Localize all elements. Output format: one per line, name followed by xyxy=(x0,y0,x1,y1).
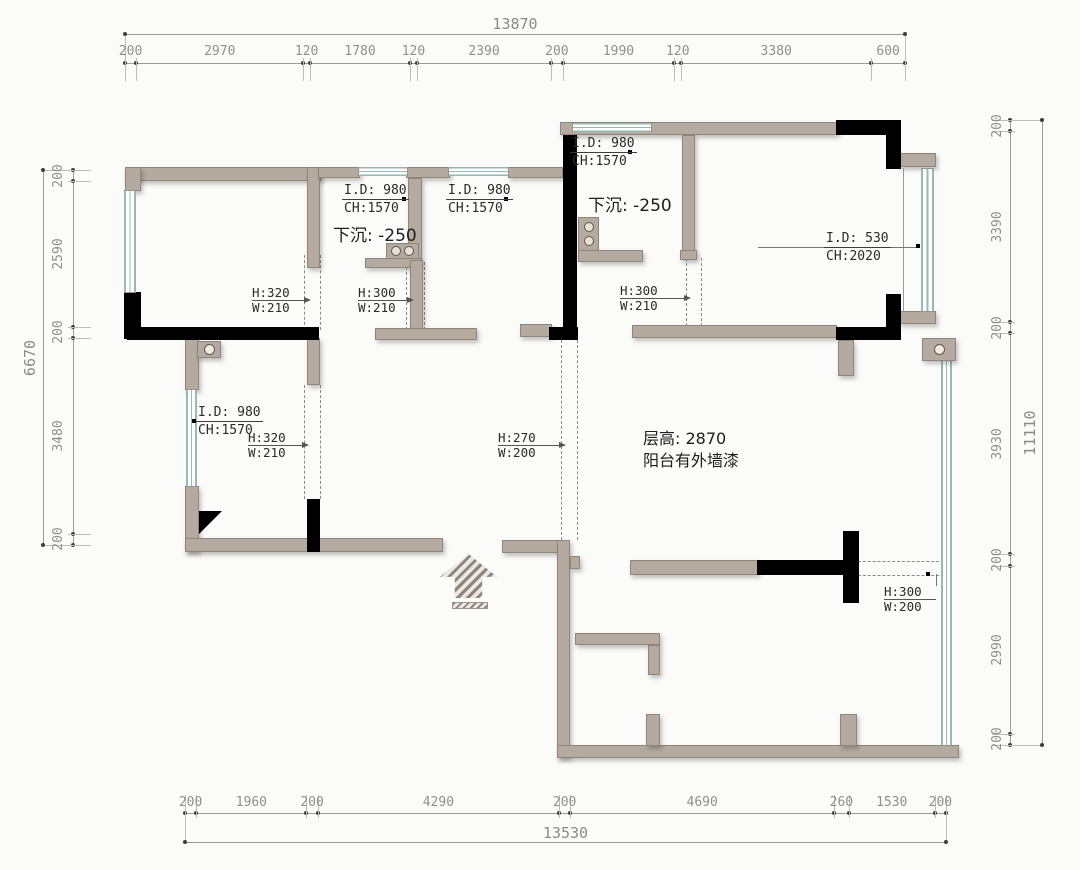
beam-leader-arrowhead xyxy=(304,297,311,303)
dim-segment-label: 200 xyxy=(990,525,1004,595)
structural-wall-segment xyxy=(886,120,901,169)
sunken-note: 下沉: -250 xyxy=(333,221,417,246)
beam-width-value: W:200 xyxy=(498,445,536,460)
dim-segment-label: 200 xyxy=(96,44,166,58)
beam-dashed-line xyxy=(686,258,687,326)
window xyxy=(572,123,652,132)
beam-height-value: H:300 xyxy=(620,283,658,298)
corner-marker xyxy=(199,511,222,534)
beam-dashed-line xyxy=(304,255,305,330)
dim-segment-label: 200 xyxy=(277,795,347,809)
window-ch-value: CH:1570 xyxy=(570,153,637,169)
beam-leader-line xyxy=(252,300,304,301)
wall-segment xyxy=(375,328,477,340)
beam-dashed-line xyxy=(858,575,944,576)
dim-line xyxy=(125,63,905,64)
wall-segment xyxy=(570,556,580,569)
beam-leader-arrowhead xyxy=(684,295,691,301)
dim-extension xyxy=(681,58,682,81)
stove-fixture xyxy=(578,217,599,251)
dim-segment-label: 3930 xyxy=(990,409,1004,479)
dim-tick xyxy=(944,840,948,844)
dim-extension xyxy=(68,170,91,171)
wall-segment xyxy=(680,250,697,260)
beam-dashed-line xyxy=(424,262,425,330)
leader-line xyxy=(936,574,937,586)
wall-segment xyxy=(307,338,320,385)
dim-segment-label: 120 xyxy=(378,44,448,58)
wall-segment xyxy=(575,633,660,645)
wall-segment xyxy=(899,153,936,167)
dim-extension xyxy=(68,181,91,182)
wall-segment xyxy=(682,135,695,255)
dim-segment-label: 2390 xyxy=(449,44,519,58)
wall-segment xyxy=(406,167,450,178)
dim-total-line xyxy=(185,842,946,843)
window-id-value: I.D: 980 xyxy=(446,183,513,200)
window-id-value: I.D: 980 xyxy=(570,136,637,153)
dim-line xyxy=(73,170,74,545)
structural-wall-segment xyxy=(836,327,901,340)
beam-width-value: W:210 xyxy=(248,445,286,460)
dim-segment-label: 4690 xyxy=(667,795,737,809)
dim-total-label: 6670 xyxy=(21,318,37,398)
dim-extension xyxy=(551,58,552,81)
dim-segment-label: 3480 xyxy=(51,401,65,471)
beam-dashed-line xyxy=(320,385,321,499)
beam-leader-arrowhead xyxy=(407,297,414,303)
beam-leader-underline xyxy=(884,599,936,600)
dim-total-line xyxy=(1042,120,1043,745)
window-id-value: I.D: 530 xyxy=(824,231,891,248)
dim-extension xyxy=(68,545,91,546)
dim-tick xyxy=(123,32,127,36)
beam-leader-line xyxy=(498,445,559,446)
beam-leader-line xyxy=(248,445,302,446)
dim-segment-label: 200 xyxy=(522,44,592,58)
sunken-note: 下沉: -250 xyxy=(588,191,672,216)
dim-total-label: 11110 xyxy=(1021,393,1037,473)
beam-dashed-line xyxy=(858,561,944,562)
leader-dot xyxy=(916,244,920,248)
dim-extension xyxy=(68,534,91,535)
beam-dashed-line xyxy=(701,258,702,326)
beam-leader-line xyxy=(358,300,407,301)
wall-segment xyxy=(648,645,660,675)
dim-extension xyxy=(410,58,411,81)
window xyxy=(448,167,509,176)
beam-height-value: H:300 xyxy=(884,584,922,599)
dim-extension xyxy=(871,58,872,81)
wall-segment xyxy=(508,167,563,178)
wall-segment xyxy=(632,325,837,338)
burner-icon xyxy=(584,236,594,246)
beam-dashed-line xyxy=(406,262,407,330)
dim-segment-label: 200 xyxy=(905,795,975,809)
wall-segment xyxy=(838,340,854,376)
dim-extension xyxy=(68,338,91,339)
dim-segment-label: 200 xyxy=(990,293,1004,363)
dim-total-line xyxy=(43,170,44,545)
beam-width-value: W:200 xyxy=(884,599,922,614)
beam-dashed-line xyxy=(320,255,321,330)
entry-threshold xyxy=(452,602,488,609)
burner-icon xyxy=(404,246,414,256)
dim-tick xyxy=(903,32,907,36)
wall-segment xyxy=(125,167,321,181)
dim-extension xyxy=(136,58,137,81)
window-ch-value: CH:2020 xyxy=(824,248,891,264)
dim-segment-label: 120 xyxy=(643,44,713,58)
structural-wall-segment xyxy=(843,531,859,603)
dim-segment-label: 200 xyxy=(156,795,226,809)
wall-segment xyxy=(502,540,564,553)
beam-height-value: H:320 xyxy=(248,430,286,445)
dim-extension xyxy=(563,58,564,81)
floor-plan-canvas: I.D: 980CH:1570I.D: 980CH:1570I.D: 980CH… xyxy=(0,0,1080,870)
column-marker xyxy=(922,338,956,361)
dim-tick xyxy=(41,543,45,547)
beam-leader-arrowhead xyxy=(302,442,309,448)
leader-dot xyxy=(926,572,930,576)
dim-extension xyxy=(674,58,675,81)
wall-segment xyxy=(520,324,552,337)
beam-width-value: W:210 xyxy=(620,298,658,313)
wall-segment xyxy=(630,560,758,575)
window-ch-value: CH:1570 xyxy=(342,200,409,216)
dim-tick xyxy=(1040,118,1044,122)
wall-segment xyxy=(840,714,857,746)
dim-segment-label: 2970 xyxy=(185,44,255,58)
dim-segment-label: 600 xyxy=(853,44,923,58)
window-ch-value: CH:1570 xyxy=(446,200,513,216)
dim-extension xyxy=(68,327,91,328)
dim-extension xyxy=(417,58,418,81)
dim-extension xyxy=(303,58,304,81)
wall-segment xyxy=(557,745,959,758)
dim-segment-label: 200 xyxy=(990,91,1004,161)
beam-width-value: W:210 xyxy=(252,300,290,315)
dim-segment-label: 3380 xyxy=(741,44,811,58)
dim-extension xyxy=(310,58,311,81)
beam-leader-line xyxy=(620,298,684,299)
dim-total-line xyxy=(125,34,905,35)
window xyxy=(921,168,934,312)
structural-wall-segment xyxy=(127,327,319,340)
dim-segment-label: 2990 xyxy=(990,615,1004,685)
beam-width-value: W:210 xyxy=(358,300,396,315)
window xyxy=(358,167,408,176)
circle-marker-icon xyxy=(204,344,215,355)
window-label: I.D: 980CH:1570 xyxy=(570,136,637,169)
beam-height-value: H:320 xyxy=(252,285,290,300)
dim-tick xyxy=(41,168,45,172)
beam-dashed-line xyxy=(577,340,578,540)
wall-segment xyxy=(125,167,141,191)
balcony-paint-note: 阳台有外墙漆 xyxy=(643,447,739,471)
dim-total-label: 13530 xyxy=(526,824,606,840)
wall-segment xyxy=(578,250,643,262)
circle-marker-icon xyxy=(934,344,945,355)
burner-icon xyxy=(391,246,401,256)
window-frame-line xyxy=(903,168,904,312)
ceiling-height-note: 层高: 2870 xyxy=(643,425,726,449)
wall-segment xyxy=(307,167,320,268)
beam-height-value: H:300 xyxy=(358,285,396,300)
dim-extension xyxy=(125,58,126,81)
dim-segment-label: 4290 xyxy=(403,795,473,809)
dim-segment-label: 2590 xyxy=(51,219,65,289)
window-label: I.D: 980CH:1570 xyxy=(342,183,409,216)
wall-segment xyxy=(557,540,570,758)
wall-segment xyxy=(646,714,660,746)
window-label: I.D: 530CH:2020 xyxy=(824,231,891,264)
dim-segment-label: 200 xyxy=(51,141,65,211)
dim-segment-label: 200 xyxy=(51,297,65,367)
dim-segment-label: 200 xyxy=(530,795,600,809)
window xyxy=(186,389,197,487)
dim-segment-label: 1960 xyxy=(216,795,286,809)
dim-tick xyxy=(183,840,187,844)
beam-dashed-line xyxy=(561,340,562,540)
dim-extension xyxy=(905,58,906,81)
column-marker xyxy=(197,341,221,358)
window-id-value: I.D: 980 xyxy=(196,405,263,422)
dim-line xyxy=(1010,120,1011,745)
window xyxy=(124,190,136,293)
burner-icon xyxy=(584,222,594,232)
wall-segment xyxy=(899,311,936,324)
entry-arrow xyxy=(440,554,497,598)
dim-total-label: 13870 xyxy=(475,15,555,31)
dim-segment-label: 200 xyxy=(990,704,1004,774)
dim-tick xyxy=(1040,743,1044,747)
window-id-value: I.D: 980 xyxy=(342,183,409,200)
structural-wall-segment xyxy=(757,560,845,575)
wall-segment xyxy=(318,167,360,178)
window-label: I.D: 980CH:1570 xyxy=(446,183,513,216)
dim-segment-label: 200 xyxy=(51,504,65,574)
wall-segment xyxy=(410,260,423,330)
structural-wall-segment xyxy=(307,499,320,552)
window xyxy=(941,360,952,746)
beam-leader-arrowhead xyxy=(559,442,566,448)
dim-segment-label: 3390 xyxy=(990,192,1004,262)
beam-height-value: H:270 xyxy=(498,430,536,445)
